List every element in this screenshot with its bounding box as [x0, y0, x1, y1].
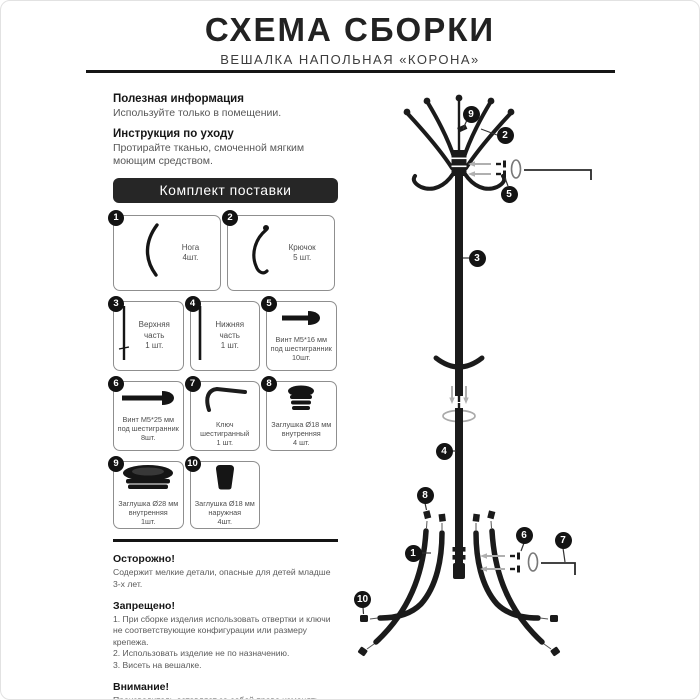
item-qty: 4 шт.	[269, 438, 334, 447]
callout-10: 10	[354, 591, 371, 608]
kit-item-8: 8 Заглушка Ø18 мм внутренняя 4 шт.	[266, 381, 337, 451]
kit-item-3: 3 Верхняя часть 1 шт.	[113, 301, 184, 371]
page-title: СХЕМА СБОРКИ	[1, 11, 699, 49]
item-number-badge: 3	[108, 296, 124, 312]
useful-info-title: Полезная информация	[113, 93, 338, 105]
attention-block: Внимание! Производитель оставляет за соб…	[113, 681, 338, 700]
item-number-badge: 6	[108, 376, 124, 392]
attention-text: Производитель оставляет за собой право и…	[113, 695, 338, 700]
assembly-diagram: 9 2 5 3 4 8 1 6 7 10	[351, 86, 631, 691]
care-info-text: Протирайте тканью, смоченной мягким моющ…	[113, 142, 338, 169]
item-name: Нижняя часть	[205, 320, 256, 341]
upper-pole-icon	[118, 304, 130, 367]
rotation-symbol-top	[512, 160, 521, 178]
item-qty: 10шт.	[269, 353, 334, 362]
item-name: Ключ шестигранный	[193, 420, 258, 438]
item-number-badge: 4	[185, 296, 201, 312]
kit-item-10: 10 Заглушка Ø18 мм наружная 4шт.	[190, 461, 261, 529]
prohibited-title: Запрещено!	[113, 600, 338, 612]
item-qty: 1шт.	[116, 517, 181, 526]
item-name: Заглушка Ø18 мм наружная	[193, 499, 258, 517]
item-number-badge: 5	[261, 296, 277, 312]
prohibited-line: 2. Использовать изделие не по назначению…	[113, 648, 338, 660]
header: СХЕМА СБОРКИ ВЕШАЛКА НАПОЛЬНАЯ «КОРОНА»	[1, 11, 699, 67]
plug-28-inner-icon	[119, 464, 177, 496]
callout-1: 1	[405, 545, 422, 562]
item-name: Винт М5*25 мм под шестигранник	[116, 415, 181, 433]
kit-item-2: 2 Крючок 5 шт.	[227, 215, 335, 291]
useful-info-block: Полезная информация Используйте только в…	[113, 93, 338, 121]
item-qty: 4шт.	[182, 253, 199, 263]
callout-2: 2	[497, 127, 514, 144]
item-name: Верхняя часть	[130, 320, 179, 341]
item-qty: 5 шт.	[289, 253, 316, 263]
assembly-sheet: СХЕМА СБОРКИ ВЕШАЛКА НАПОЛЬНАЯ «КОРОНА» …	[0, 0, 700, 700]
attention-title: Внимание!	[113, 681, 338, 693]
item-caption: Винт М5*16 мм под шестигранник 10шт.	[269, 335, 334, 362]
item-number-badge: 7	[185, 376, 201, 392]
hex-key-bottom	[541, 563, 575, 575]
screw-m5x16-icon	[279, 309, 323, 332]
item-caption: Нога 4шт.	[182, 243, 199, 264]
callout-5: 5	[501, 186, 518, 203]
item-number-badge: 8	[261, 376, 277, 392]
plug-18-inner-icon	[284, 384, 318, 417]
caution-block: Осторожно! Содержит мелкие детали, опасн…	[113, 553, 338, 590]
care-info-block: Инструкция по уходу Протирайте тканью, с…	[113, 128, 338, 169]
coat-rack-drawing	[351, 86, 631, 691]
prohibited-line: 3. Висеть на вешалке.	[113, 660, 338, 672]
item-qty: 1 шт.	[193, 438, 258, 447]
item-name: Винт М5*16 мм под шестигранник	[269, 335, 334, 353]
item-qty: 1 шт.	[130, 341, 179, 351]
item-caption: Крючок 5 шт.	[289, 243, 316, 264]
caution-title: Осторожно!	[113, 553, 338, 565]
callout-7: 7	[555, 532, 572, 549]
kit-row-1: 1 Нога 4шт. 2 Крючок 5 шт.	[113, 215, 338, 291]
header-divider	[86, 70, 615, 73]
care-info-title: Инструкция по уходу	[113, 128, 338, 140]
useful-info-text: Используйте только в помещении.	[113, 107, 338, 121]
kit-row-2: 3 Верхняя часть 1 шт. 4 Нижняя часть 1 ш…	[113, 301, 338, 371]
page-subtitle: ВЕШАЛКА НАПОЛЬНАЯ «КОРОНА»	[1, 52, 699, 67]
screw-m5x25-icon	[120, 389, 176, 412]
callout-6: 6	[516, 527, 533, 544]
callout-9: 9	[463, 106, 480, 123]
kit-item-7: 7 Ключ шестигранный 1 шт.	[190, 381, 261, 451]
kit-row-3: 6 Винт М5*25 мм под шестигранник 8шт. 7 …	[113, 381, 338, 451]
kit-item-4: 4 Нижняя часть 1 шт.	[190, 301, 261, 371]
item-caption: Нижняя часть 1 шт.	[205, 320, 256, 351]
item-caption: Заглушка Ø28 мм внутренняя 1шт.	[116, 499, 181, 526]
item-number-badge: 10	[185, 456, 201, 472]
item-qty: 1 шт.	[205, 341, 256, 351]
item-number-badge: 2	[222, 210, 238, 226]
caution-text: Содержит мелкие детали, опасные для дете…	[113, 567, 338, 590]
screw-arrows-bottom	[480, 553, 519, 573]
leg-icon	[135, 221, 165, 284]
item-number-badge: 9	[108, 456, 124, 472]
plug-18-outer-icon	[211, 463, 239, 496]
kit-banner: Комплект поставки	[113, 178, 338, 203]
prohibited-line: 1. При сборке изделия использовать отвер…	[113, 614, 338, 649]
kit-item-6: 6 Винт М5*25 мм под шестигранник 8шт.	[113, 381, 184, 451]
kit-item-5: 5 Винт М5*16 мм под шестигранник 10шт.	[266, 301, 337, 371]
item-caption: Верхняя часть 1 шт.	[130, 320, 179, 351]
lower-pole	[453, 403, 466, 579]
item-name: Нога	[182, 243, 199, 253]
foot-caps	[357, 615, 560, 657]
item-caption: Винт М5*25 мм под шестигранник 8шт.	[116, 415, 181, 442]
item-caption: Ключ шестигранный 1 шт.	[193, 420, 258, 447]
hex-key-icon	[201, 384, 249, 417]
item-caption: Заглушка Ø18 мм наружная 4шт.	[193, 499, 258, 526]
item-number-badge: 1	[108, 210, 124, 226]
prohibited-block: Запрещено! 1. При сборке изделия использ…	[113, 600, 338, 672]
callout-8: 8	[417, 487, 434, 504]
item-name: Крючок	[289, 243, 316, 253]
item-name: Заглушка Ø18 мм внутренняя	[269, 420, 334, 438]
left-column: Полезная информация Используйте только в…	[113, 93, 338, 700]
item-qty: 4шт.	[193, 517, 258, 526]
callout-3: 3	[469, 250, 486, 267]
lower-pole-icon	[195, 304, 205, 367]
kit-item-1: 1 Нога 4шт.	[113, 215, 221, 291]
kit-item-9: 9 Заглушка Ø28 мм внутренняя 1шт.	[113, 461, 184, 529]
item-name: Заглушка Ø28 мм внутренняя	[116, 499, 181, 517]
callout-4: 4	[436, 443, 453, 460]
hook-icon	[246, 221, 274, 284]
item-caption: Заглушка Ø18 мм внутренняя 4 шт.	[269, 420, 334, 447]
hex-key-top	[524, 170, 591, 180]
item-qty: 8шт.	[116, 433, 181, 442]
kit-row-4: 9 Заглушка Ø28 мм внутренняя 1шт. 10 Заг…	[113, 461, 338, 529]
rotation-symbol-bottom	[529, 553, 538, 571]
kit-divider	[113, 539, 338, 543]
screw-arrows-top	[468, 161, 505, 178]
